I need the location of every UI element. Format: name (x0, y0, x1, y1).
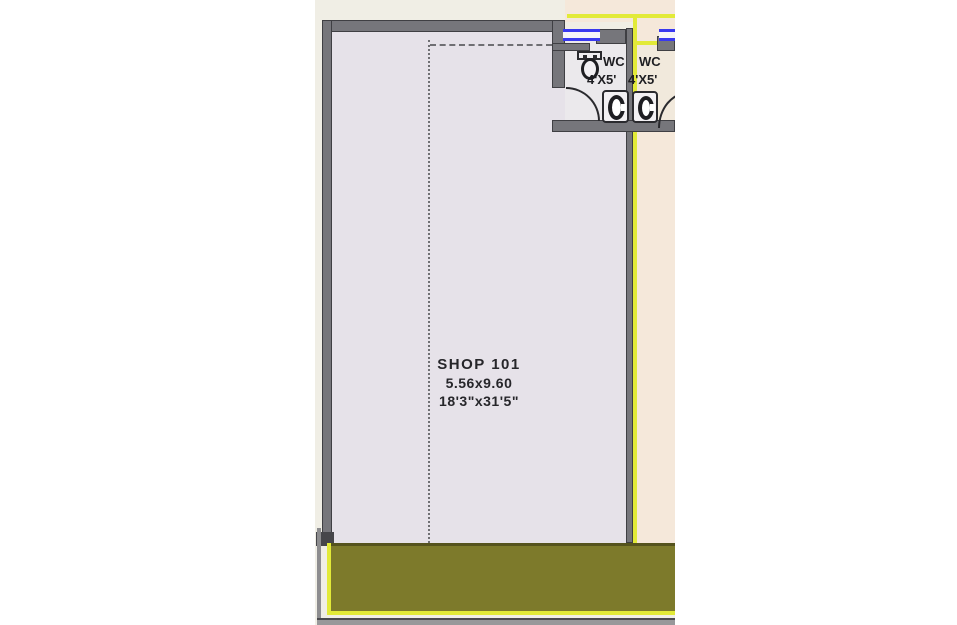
washbasin-notch (650, 104, 655, 111)
washbasin-notch (621, 104, 626, 111)
wc-right-size: 4'X5' (628, 72, 657, 87)
wall-window-mid-block (596, 29, 626, 44)
boundary-line-left (317, 528, 321, 620)
shop-size-feet: 18'3"x31'5" (414, 392, 544, 410)
front-road-area (331, 543, 675, 611)
highlight-line-top (567, 14, 675, 18)
floor-plan-sheet: SHOP 101 5.56x9.60 18'3"x31'5" WC 4'X5' … (315, 0, 675, 625)
shop-size-meters: 5.56x9.60 (414, 374, 544, 392)
wall-top (322, 20, 565, 32)
window-glazing-left-wc (563, 29, 600, 41)
highlight-line-wc-right-top (637, 41, 657, 45)
washbasin-icon-left (602, 90, 629, 123)
shop-101-label-block: SHOP 101 5.56x9.60 18'3"x31'5" (414, 356, 544, 410)
washbasin-icon-right (632, 91, 658, 123)
shop-name-label: SHOP 101 (414, 356, 544, 374)
window-glazing-right-wc (659, 29, 675, 41)
guide-line-vertical (428, 40, 430, 543)
guide-line-horizontal (430, 44, 552, 46)
wall-left (322, 20, 332, 545)
wall-wc-left-stub (552, 43, 590, 51)
wc-left-size: 4'X5' (587, 72, 616, 87)
floor-plan-screenshot: SHOP 101 5.56x9.60 18'3"x31'5" WC 4'X5' … (0, 0, 957, 625)
bottom-section-band (317, 618, 675, 625)
wc-right-label: WC (639, 54, 661, 69)
wc-left-label: WC (603, 54, 625, 69)
